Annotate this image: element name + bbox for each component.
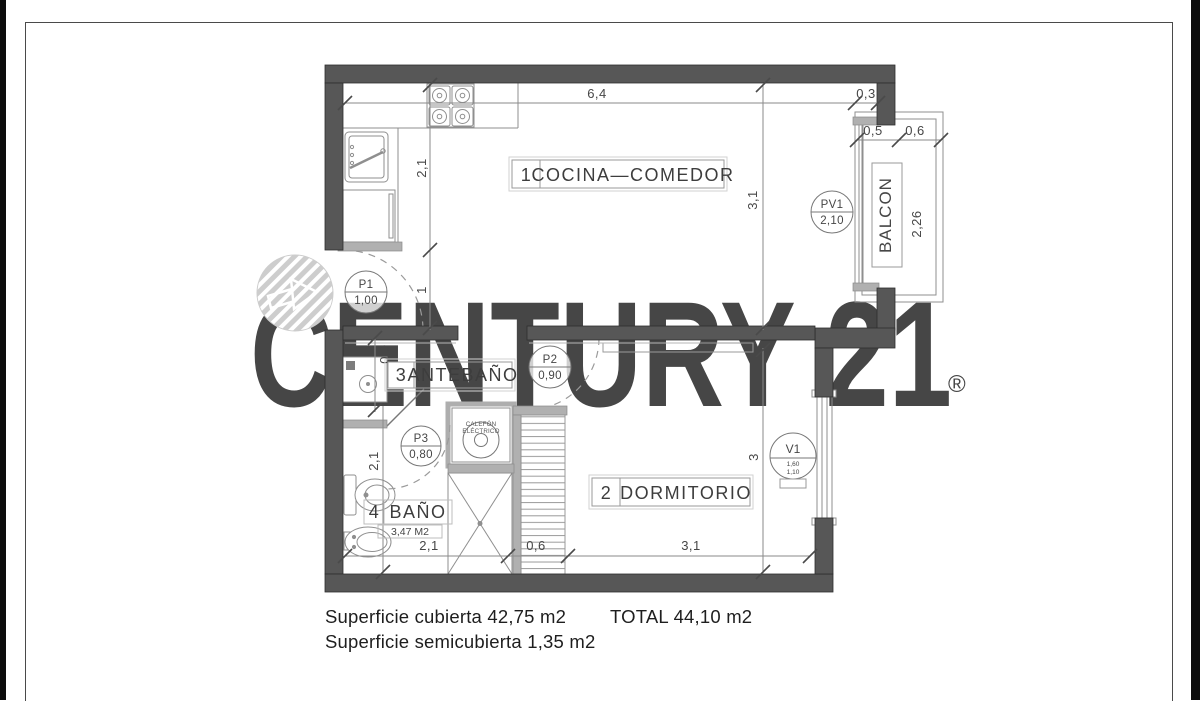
- dim-bottom-left: 2,1: [419, 538, 439, 553]
- surface-total: TOTAL 44,10 m2: [610, 604, 752, 629]
- wall-right-l: [815, 328, 895, 348]
- balcony-label: BALCON: [876, 177, 895, 253]
- window-tag-v1: V1 1,60 1,10: [770, 433, 816, 488]
- door-tag-p1-size: 1,00: [354, 295, 378, 307]
- dim-p1-opening: 1: [414, 286, 429, 294]
- dim-kitchen-right-height: 3,1: [745, 190, 760, 210]
- door-tag-p3-id: P3: [414, 433, 429, 445]
- room-num-2: 2: [601, 483, 612, 503]
- wall-bottom: [325, 574, 833, 592]
- wall-balcony-bottom-block: [877, 288, 895, 330]
- wall-balcony-top-block: [877, 83, 895, 125]
- dim-bath-height: 2,1: [366, 451, 381, 471]
- wall-left-lower: [325, 330, 343, 574]
- wall-mid-right: [527, 326, 815, 340]
- door-tag-pv1-size: 2,10: [820, 215, 844, 227]
- door-tag-p2-size: 0,90: [538, 370, 562, 382]
- window-tag-v1-size-a: 1,60: [787, 461, 800, 468]
- window-tag-v1-id: V1: [786, 442, 801, 456]
- room-name-4: BAÑO: [389, 501, 446, 522]
- shower-icon: [448, 473, 512, 574]
- door-tag-pv1-id: PV1: [821, 199, 844, 211]
- door-tag-p1-id: P1: [359, 279, 374, 291]
- page: { "watermark": { "brand": "CENTURY 21", …: [0, 0, 1200, 700]
- calefon-label-line2: ELÉCTRICO: [462, 428, 499, 435]
- room-name-1: COCINA—COMEDOR: [531, 165, 734, 185]
- dim-bottom-mid: 0,6: [526, 538, 546, 553]
- dim-dorm-height: 3: [746, 453, 761, 461]
- wall-right-upper: [815, 348, 833, 397]
- wall-top: [325, 65, 895, 83]
- room-num-4: 4: [369, 502, 380, 522]
- surface-covered: Superficie cubierta 42,75 m2: [325, 604, 595, 629]
- room-name-2: DORMITORIO: [620, 483, 752, 503]
- room-area-4: 3,47 M2: [391, 526, 429, 538]
- room-label-cocina: 1 COCINA—COMEDOR: [509, 157, 735, 191]
- water-heater-icon: CALEFÓN ELÉCTRICO: [448, 404, 514, 466]
- watermark-logo: [257, 255, 333, 331]
- calefon-label-line1: CALEFÓN: [466, 421, 497, 428]
- door-tag-p3-size: 0,80: [409, 449, 433, 461]
- kitchen-sink-icon: [345, 132, 388, 182]
- window-tag-v1-size-b: 1,10: [787, 469, 800, 476]
- wall-mid-left: [343, 326, 458, 340]
- surface-semicovered: Superficie semicubierta 1,35 m2: [325, 629, 595, 654]
- dim-kitchen-height: 2,1: [414, 158, 429, 178]
- door-tag-p3: P3 0,80: [401, 426, 441, 466]
- watermark-registered-icon: ®: [948, 371, 966, 398]
- door-tag-p2-id: P2: [543, 354, 558, 366]
- wall-right-lower: [815, 518, 833, 574]
- room-num-3: 3: [396, 365, 407, 385]
- door-tag-p1: P1 1,00: [345, 271, 387, 313]
- surface-summary: Superficie cubierta 42,75 m2 Superficie …: [325, 604, 595, 654]
- floor-plan-svg: CENTURY 21 ®: [0, 0, 1200, 700]
- dim-balcony-length: 2,26: [909, 210, 924, 237]
- balcony-inner-rail: [862, 119, 936, 295]
- room-num-1: 1: [521, 165, 532, 185]
- dim-bottom-right: 3,1: [681, 538, 701, 553]
- fridge-icon: [343, 190, 395, 242]
- room-label-balcon: BALCON: [872, 163, 902, 267]
- room-name-3: ANTEBAÑO: [407, 364, 518, 385]
- stove-icon: [427, 84, 474, 127]
- dim-top-right: 0,3: [856, 86, 876, 101]
- bidet-icon: [344, 527, 391, 557]
- room-label-dormitorio: 2 DORMITORIO: [589, 475, 753, 509]
- dim-balcony-w2: 0,6: [905, 123, 925, 138]
- dim-top-main: 6,4: [587, 86, 607, 101]
- dim-balcony-w1: 0,5: [863, 123, 883, 138]
- door-tag-p2: P2 0,90: [529, 346, 571, 388]
- door-tag-pv1: PV1 2,10: [811, 191, 853, 233]
